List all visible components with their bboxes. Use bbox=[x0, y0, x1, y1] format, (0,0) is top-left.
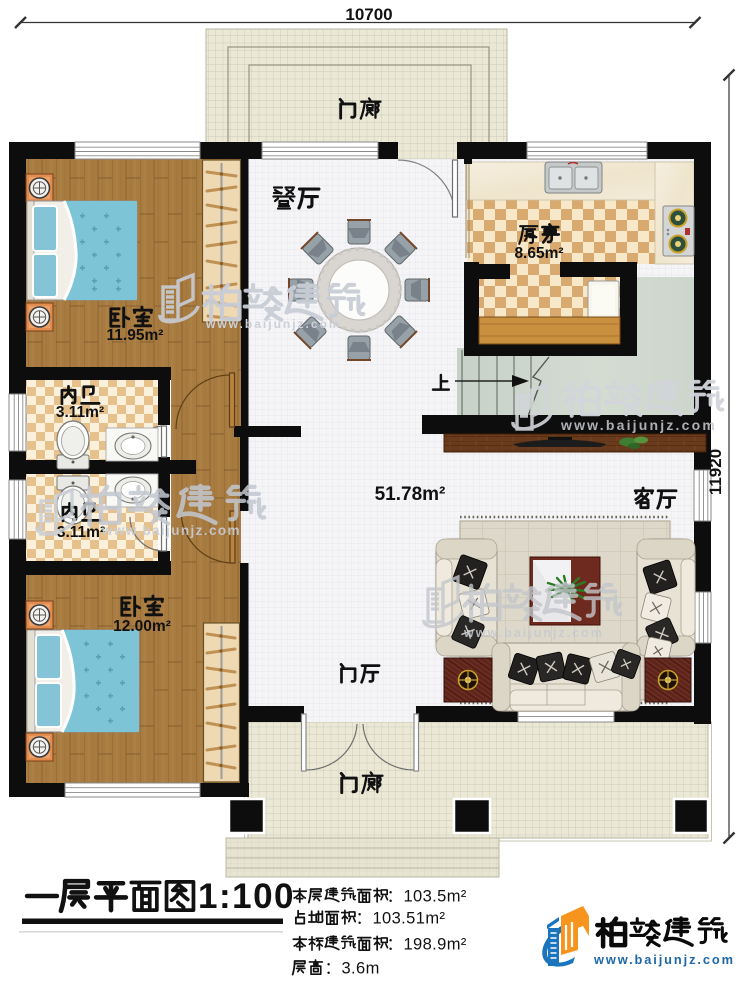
svg-text:www.baijunjz.com: www.baijunjz.com bbox=[101, 523, 241, 538]
svg-text:：198.9m²: ：198.9m² bbox=[387, 936, 467, 954]
svg-text:1:100: 1:100 bbox=[198, 877, 295, 916]
svg-text:www.baijunjz.com: www.baijunjz.com bbox=[560, 417, 717, 433]
svg-text:11.95m²: 11.95m² bbox=[107, 327, 164, 344]
svg-text:www.baijunjz.com: www.baijunjz.com bbox=[593, 952, 735, 967]
svg-text:8.65m²: 8.65m² bbox=[514, 245, 563, 262]
svg-text:：3.6m: ：3.6m bbox=[325, 960, 380, 978]
svg-text:：103.51m²: ：103.51m² bbox=[356, 910, 446, 928]
svg-text:3.11m²: 3.11m² bbox=[56, 404, 104, 421]
svg-text:www.baijunjz.com: www.baijunjz.com bbox=[463, 626, 604, 640]
svg-text:11920: 11920 bbox=[706, 449, 725, 495]
svg-text:3.11m²: 3.11m² bbox=[57, 524, 105, 541]
svg-text:10700: 10700 bbox=[345, 5, 392, 24]
svg-text:www.baijunjz.com: www.baijunjz.com bbox=[205, 317, 342, 331]
svg-text:51.78m²: 51.78m² bbox=[375, 484, 446, 505]
svg-text:：103.5m²: ：103.5m² bbox=[387, 888, 467, 906]
svg-text:12.00m²: 12.00m² bbox=[113, 618, 171, 635]
